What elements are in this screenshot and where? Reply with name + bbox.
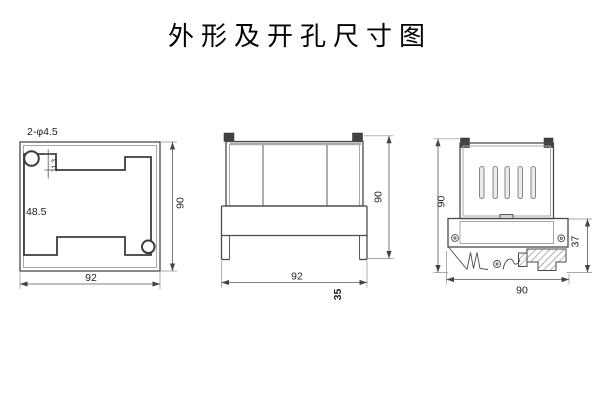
vent-slots bbox=[480, 167, 536, 199]
bracket-screw-left bbox=[452, 235, 459, 242]
front-depth-dim-text: 35 bbox=[332, 289, 344, 301]
step-dim-text: 11.3 bbox=[52, 159, 59, 172]
vent-slot bbox=[505, 167, 510, 199]
front-height-dim-text: 90 bbox=[373, 191, 385, 203]
holes-diameter-label: 2-φ4.5 bbox=[27, 126, 58, 138]
rail-section-small bbox=[519, 253, 528, 267]
clip-hook bbox=[503, 259, 520, 269]
bracket-plate bbox=[448, 219, 568, 248]
front-width-dim-text: 92 bbox=[291, 271, 303, 283]
bracket-inner bbox=[460, 222, 554, 244]
vent-slot bbox=[480, 167, 485, 199]
side-height-dim-text: 90 bbox=[436, 196, 448, 208]
rail-depth-dim-text: 37 bbox=[570, 236, 582, 248]
body-outline bbox=[226, 142, 363, 207]
vent-slot bbox=[531, 167, 536, 199]
mounting-clip-right bbox=[353, 133, 363, 142]
vent-slot bbox=[518, 167, 523, 199]
bracket-screw-left-center bbox=[454, 237, 456, 239]
middle-height-dim-text: 48.5 bbox=[26, 206, 47, 218]
drawing-page: 外形及开孔尺寸图 2-φ4.5 11.3 48.5 bbox=[0, 0, 600, 400]
vent-slot bbox=[493, 167, 498, 199]
side-width-dim-text: 90 bbox=[516, 285, 528, 297]
din-rail-section bbox=[527, 249, 566, 271]
width-dim-text: 92 bbox=[85, 272, 97, 284]
height-dim-text: 90 bbox=[175, 197, 187, 209]
cutout-opening-outline bbox=[24, 154, 151, 255]
bracket-screw-right bbox=[558, 235, 565, 242]
mounting-hole-bottom-right bbox=[142, 241, 155, 254]
front-profile-view: 90 92 35 bbox=[222, 133, 394, 300]
drawing-canvas: 2-φ4.5 11.3 48.5 92 90 bbox=[0, 0, 600, 400]
clip-pivot-center bbox=[496, 263, 498, 265]
bracket-screw-right-center bbox=[560, 237, 562, 239]
clip-bevel bbox=[449, 247, 468, 270]
mounting-hole-top-left bbox=[24, 151, 39, 166]
din-rail-side-view: 90 37 90 bbox=[434, 138, 593, 297]
clip-pivot bbox=[494, 261, 501, 268]
mounting-clip-left bbox=[224, 133, 234, 142]
clip-spring bbox=[467, 253, 488, 270]
rail-clip-detail bbox=[449, 247, 567, 271]
panel-cutout-view: 2-φ4.5 11.3 48.5 92 90 bbox=[20, 126, 187, 289]
